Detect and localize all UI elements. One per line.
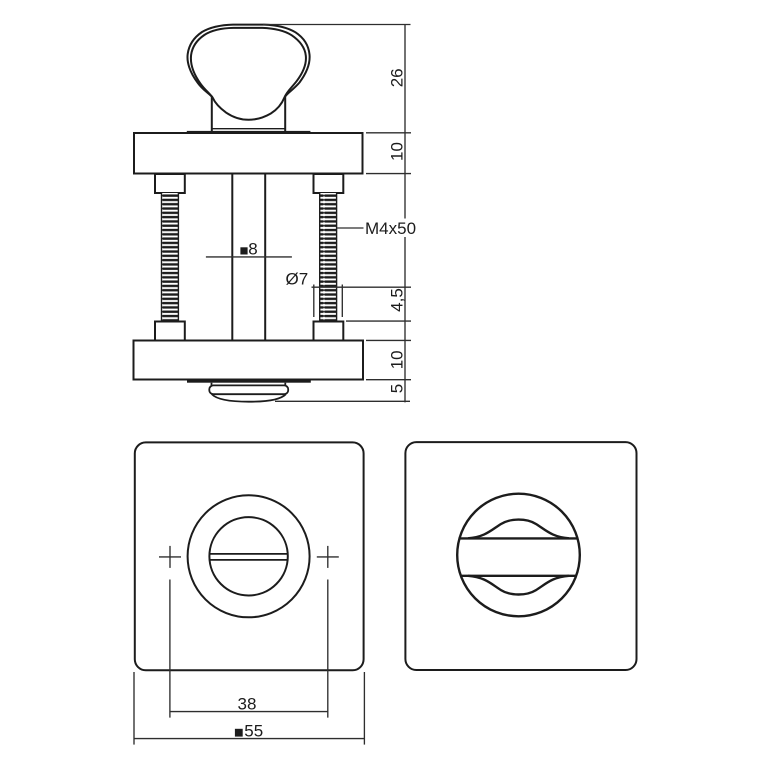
svg-text:10: 10 [387,350,406,369]
svg-text:8: 8 [248,240,257,259]
svg-text:M4x50: M4x50 [365,219,416,238]
svg-text:4,5: 4,5 [387,288,406,312]
svg-text:Ø7: Ø7 [286,269,309,288]
svg-text:5: 5 [387,384,406,393]
svg-text:55: 55 [244,721,263,740]
svg-text:26: 26 [387,68,406,87]
svg-text:38: 38 [238,695,257,714]
svg-text:10: 10 [387,142,406,161]
